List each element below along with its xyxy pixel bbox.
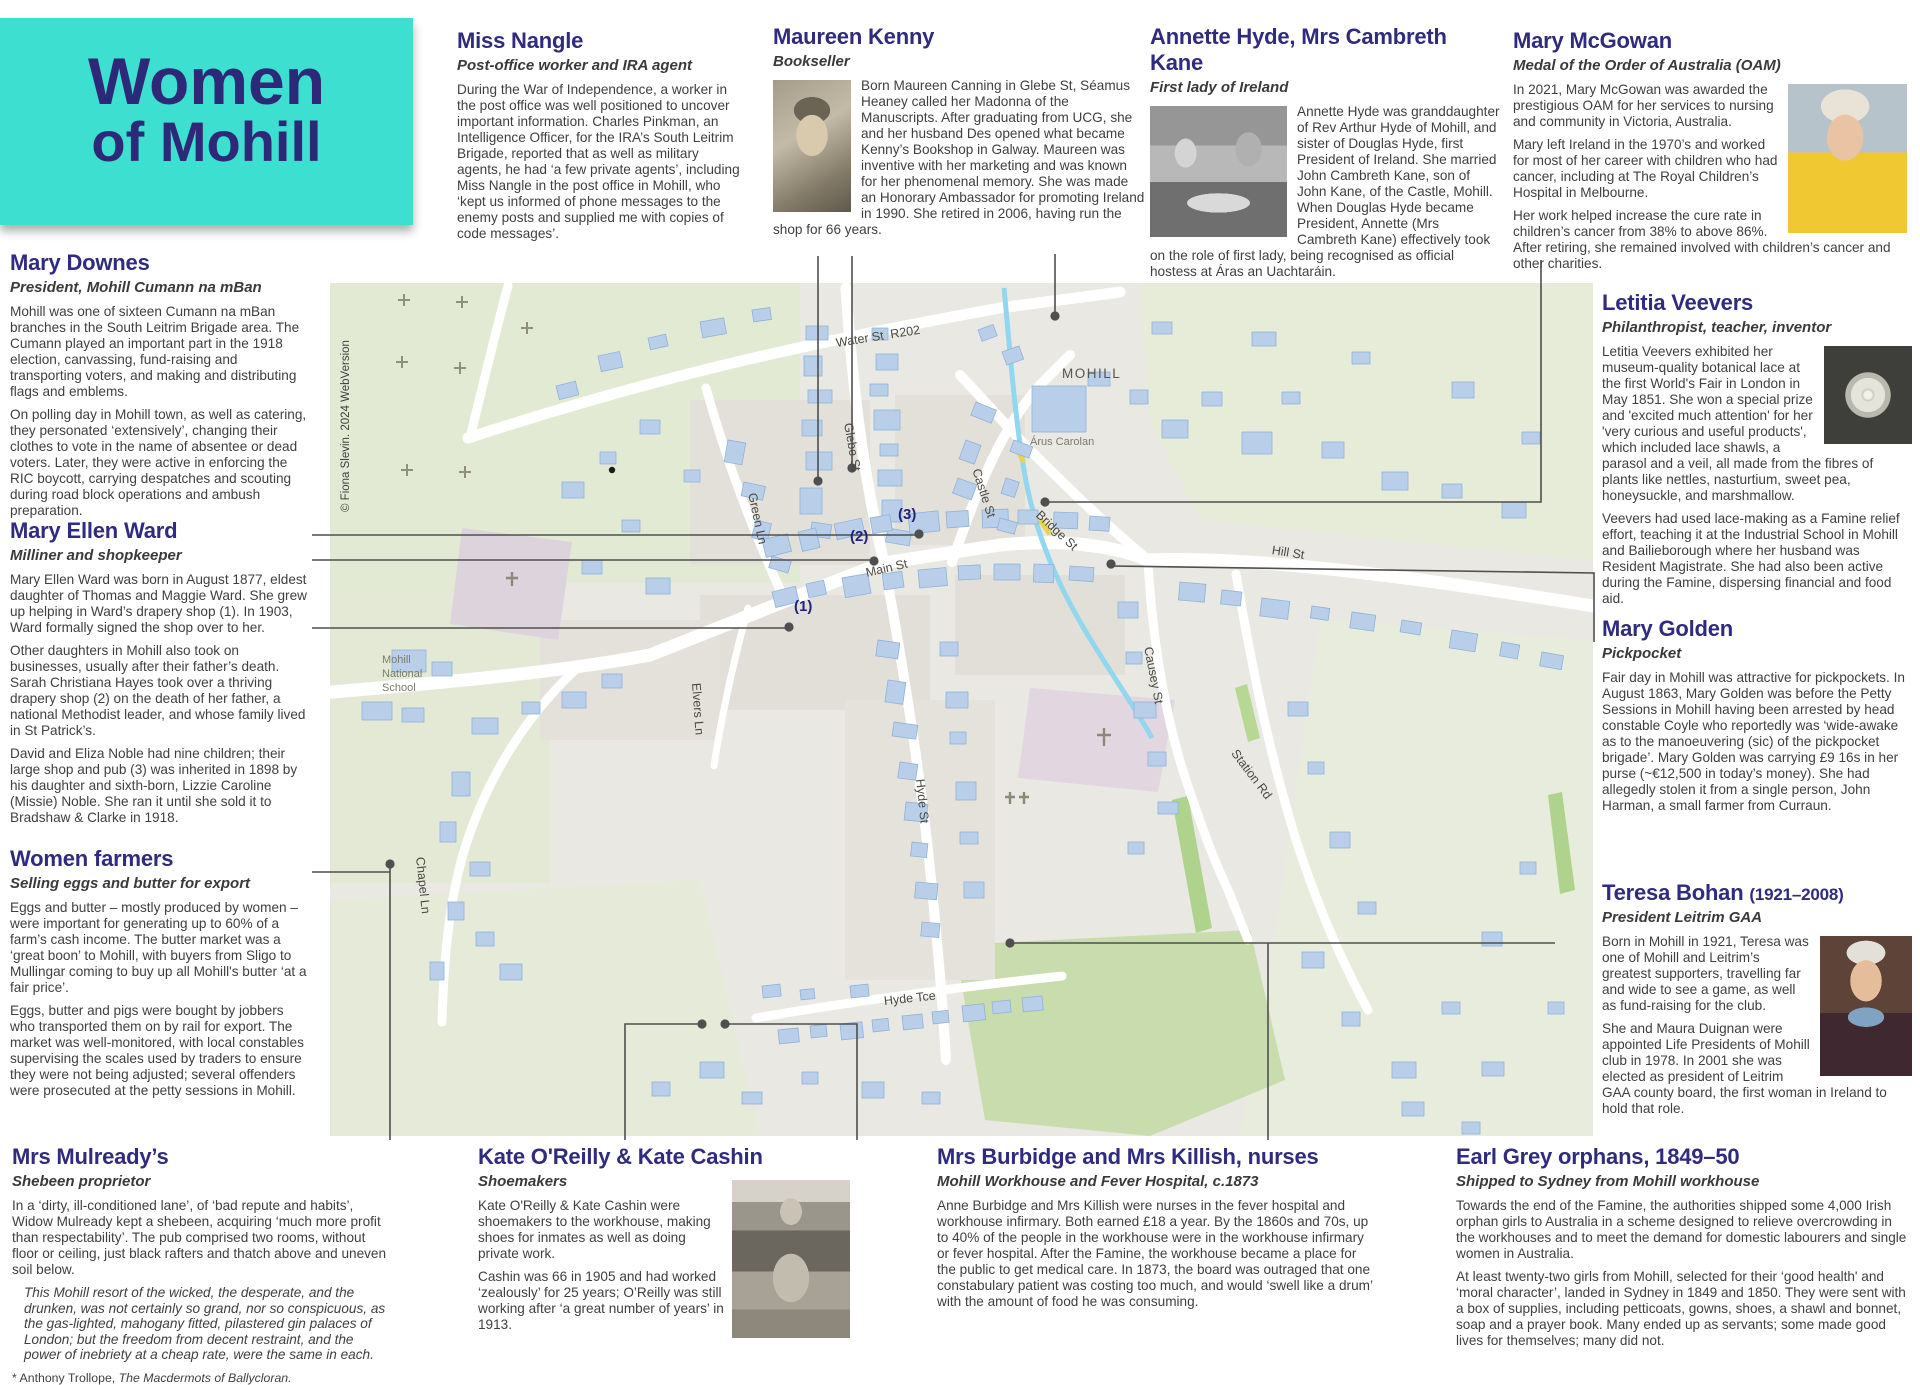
section-heading: Mary Downes <box>10 250 312 276</box>
section-heading: Women farmers <box>10 846 312 872</box>
section-women-farmers: Women farmers Selling eggs and butter fo… <box>10 846 312 1106</box>
section-heading: Mrs Burbidge and Mrs Killish, nurses <box>937 1144 1373 1170</box>
section-subtitle: Pickpocket <box>1602 645 1912 662</box>
annette-hyde-photo <box>1150 106 1287 237</box>
section-subtitle: President Leitrim GAA <box>1602 909 1912 926</box>
map-marker-2: (2) <box>850 528 868 545</box>
title-line-2: of Mohill <box>0 114 413 170</box>
kate-cashin-photo <box>732 1180 850 1338</box>
section-paragraph: At least twenty-two girls from Mohill, s… <box>1456 1269 1912 1349</box>
section-mary-ellen-ward: Mary Ellen Ward Milliner and shopkeeper … <box>10 518 312 833</box>
section-paragraph: Eggs and butter – mostly produced by wom… <box>10 900 312 996</box>
section-heading: Mary McGowan <box>1513 28 1907 54</box>
trollope-quote: This Mohill resort of the wicked, the de… <box>24 1285 394 1362</box>
section-heading: Earl Grey orphans, 1849–50 <box>1456 1144 1912 1170</box>
map-copyright: © Fiona Slevin. 2024 WebVersion <box>340 340 352 512</box>
mary-mcgowan-photo <box>1788 84 1907 233</box>
map-marker-1: (1) <box>794 598 812 615</box>
section-subtitle: Philanthropist, teacher, inventor <box>1602 319 1912 336</box>
footnote: * Anthony Trollope, The Macdermots of Ba… <box>12 1371 394 1385</box>
national-school-label: Mohill National School <box>382 654 422 695</box>
section-paragraph: During the War of Independence, a worker… <box>457 82 745 242</box>
section-paragraph: Anne Burbidge and Mrs Killish were nurse… <box>937 1198 1373 1310</box>
section-subtitle: Selling eggs and butter for export <box>10 875 312 892</box>
section-heading: Maureen Kenny <box>773 24 1145 50</box>
town-name-label: MOHILL <box>1062 366 1121 381</box>
section-heading: Annette Hyde, Mrs Cambreth Kane <box>1150 24 1500 76</box>
section-paragraph: Fair day in Mohill was attractive for pi… <box>1602 670 1912 814</box>
map-marker-3: (3) <box>898 506 916 523</box>
section-paragraph: Towards the end of the Famine, the autho… <box>1456 1198 1912 1262</box>
section-paragraph: Veevers had used lace-making as a Famine… <box>1602 511 1912 607</box>
section-subtitle: Shebeen proprietor <box>12 1173 394 1190</box>
section-mary-golden: Mary Golden Pickpocket Fair day in Mohil… <box>1602 616 1912 821</box>
section-heading: Miss Nangle <box>457 28 745 54</box>
teresa-bohan-photo <box>1820 936 1912 1076</box>
section-teresa-bohan: Teresa Bohan (1921–2008) President Leitr… <box>1602 880 1912 1124</box>
section-subtitle: President, Mohill Cumann na mBan <box>10 279 312 296</box>
section-letitia-veevers: Letitia Veevers Philanthropist, teacher,… <box>1602 290 1912 615</box>
section-earl-grey-orphans: Earl Grey orphans, 1849–50 Shipped to Sy… <box>1456 1144 1912 1356</box>
section-paragraph: Mary Ellen Ward was born in August 1877,… <box>10 572 312 636</box>
section-heading: Mrs Mulready’s <box>12 1144 394 1170</box>
section-paragraph: Cashin was 66 in 1905 and had worked ‘ze… <box>478 1269 728 1333</box>
section-annette-hyde: Annette Hyde, Mrs Cambreth Kane First la… <box>1150 24 1500 287</box>
section-subtitle: Shipped to Sydney from Mohill workhouse <box>1456 1173 1912 1190</box>
section-subtitle: Medal of the Order of Australia (OAM) <box>1513 57 1907 74</box>
section-heading: Mary Ellen Ward <box>10 518 312 544</box>
arus-carolan-label: Árus Carolan <box>1030 436 1094 448</box>
section-burbidge-killish: Mrs Burbidge and Mrs Killish, nurses Moh… <box>937 1144 1373 1317</box>
botanical-lace-photo <box>1824 346 1912 444</box>
poster-title: Women of Mohill <box>0 18 413 225</box>
section-subtitle: Bookseller <box>773 53 1145 70</box>
title-line-1: Women <box>0 48 413 114</box>
section-mary-mcgowan: Mary McGowan Medal of the Order of Austr… <box>1513 28 1907 279</box>
maureen-kenny-photo <box>773 80 851 212</box>
section-paragraph: In a ‘dirty, ill-conditioned lane’, of ‘… <box>12 1198 394 1278</box>
heading-years: (1921–2008) <box>1749 885 1843 904</box>
section-subtitle: First lady of Ireland <box>1150 79 1500 96</box>
section-paragraph: Mohill was one of sixteen Cumann na mBan… <box>10 304 312 400</box>
section-subtitle: Post-office worker and IRA agent <box>457 57 745 74</box>
section-heading: Kate O'Reilly & Kate Cashin <box>478 1144 860 1170</box>
section-mary-downes: Mary Downes President, Mohill Cumann na … <box>10 250 312 526</box>
section-paragraph: Kate O'Reilly & Kate Cashin were shoemak… <box>478 1198 728 1262</box>
section-heading: Mary Golden <box>1602 616 1912 642</box>
section-heading: Teresa Bohan (1921–2008) <box>1602 880 1912 906</box>
section-mrs-mulready: Mrs Mulready’s Shebeen proprietor In a ‘… <box>12 1144 394 1385</box>
section-paragraph: Eggs, butter and pigs were bought by job… <box>10 1003 312 1099</box>
section-kate-oreilly-cashin: Kate O'Reilly & Kate Cashin Shoemakers K… <box>478 1144 860 1340</box>
section-subtitle: Milliner and shopkeeper <box>10 547 312 564</box>
section-subtitle: Mohill Workhouse and Fever Hospital, c.1… <box>937 1173 1373 1190</box>
section-heading: Letitia Veevers <box>1602 290 1912 316</box>
section-maureen-kenny: Maureen Kenny Bookseller Born Maureen Ca… <box>773 24 1145 245</box>
section-miss-nangle: Miss Nangle Post-office worker and IRA a… <box>457 28 745 249</box>
section-paragraph: Other daughters in Mohill also took on b… <box>10 643 312 739</box>
section-paragraph: David and Eliza Noble had nine children;… <box>10 746 312 826</box>
section-paragraph: On polling day in Mohill town, as well a… <box>10 407 312 519</box>
